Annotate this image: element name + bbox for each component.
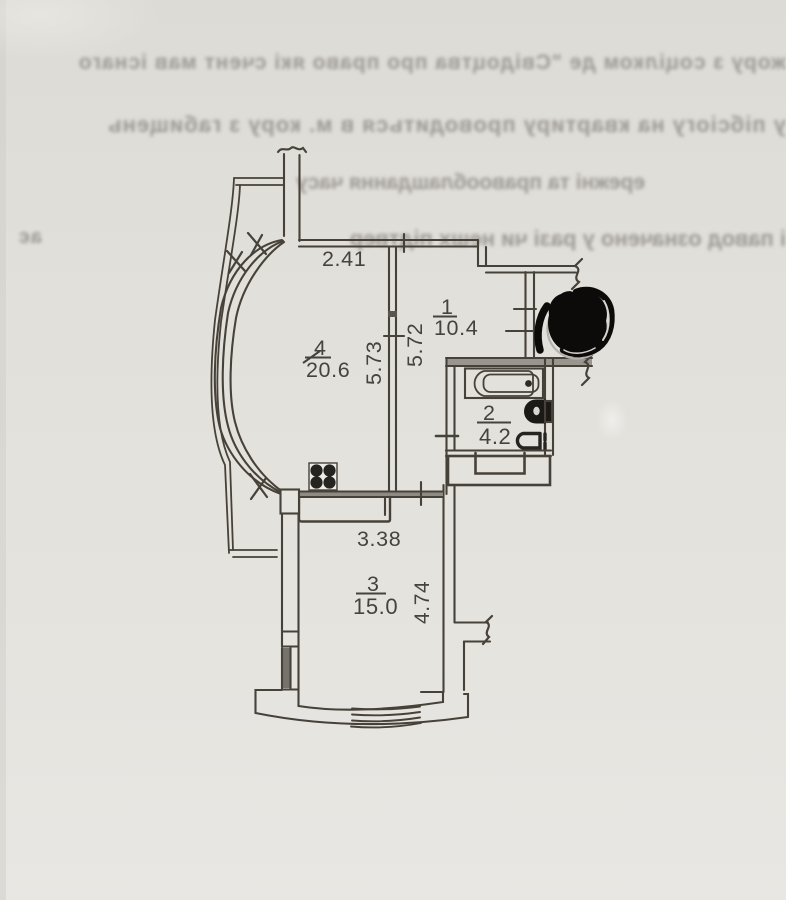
svg-text:3.38: 3.38 — [357, 527, 401, 551]
svg-text:жору з соцілком де "Свідоцтва: жору з соцілком де "Свідоцтва про право … — [78, 51, 786, 74]
svg-text:2: 2 — [483, 401, 496, 425]
svg-text:ає: ає — [18, 226, 42, 248]
svg-text:4: 4 — [314, 336, 327, 360]
svg-text:20.6: 20.6 — [306, 358, 350, 382]
svg-text:4.74: 4.74 — [411, 581, 434, 624]
svg-text:у пібсіогу на квартиру проводи: у пібсіогу на квартиру проводиться в м. … — [107, 112, 786, 137]
svg-text:5.73: 5.73 — [362, 341, 386, 385]
svg-text:2.41: 2.41 — [322, 247, 366, 271]
svg-text:5.72: 5.72 — [403, 323, 427, 367]
svg-text:15.0: 15.0 — [353, 594, 398, 619]
svg-text:10.4: 10.4 — [434, 316, 478, 340]
svg-text:4.2: 4.2 — [479, 424, 511, 449]
svg-text:3: 3 — [367, 572, 380, 596]
svg-text:ережні та правооблашдання часу: ережні та правооблашдання часу — [296, 171, 645, 194]
